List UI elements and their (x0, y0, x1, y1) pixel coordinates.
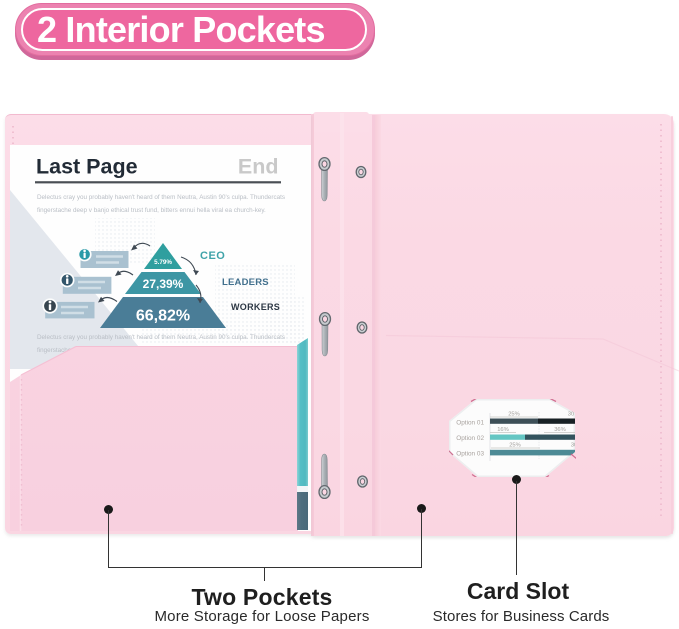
svg-text:CEO: CEO (200, 250, 225, 262)
svg-text:27,39%: 27,39% (143, 277, 184, 291)
svg-text:Option 02: Option 02 (456, 435, 484, 442)
svg-text:30: 30 (568, 412, 574, 418)
svg-text:Option 01: Option 01 (456, 420, 484, 427)
svg-text:25%: 25% (509, 443, 521, 449)
svg-text:25%: 25% (508, 412, 520, 418)
svg-text:Last Page: Last Page (36, 155, 138, 179)
svg-text:fingerstache deep v banjo ethi: fingerstache deep v banjo ethical trust … (37, 207, 266, 214)
svg-text:Option 03: Option 03 (456, 451, 484, 458)
svg-text:Delectus cray you probably hav: Delectus cray you probably haven't heard… (37, 194, 285, 201)
svg-text:16%: 16% (497, 427, 509, 433)
svg-text:30: 30 (571, 443, 576, 449)
svg-text:66,82%: 66,82% (136, 308, 190, 325)
svg-text:LEADERS: LEADERS (222, 277, 269, 288)
svg-text:WORKERS: WORKERS (231, 302, 280, 312)
svg-text:5.79%: 5.79% (154, 259, 172, 266)
svg-text:End: End (238, 155, 279, 179)
svg-text:36%: 36% (554, 427, 566, 433)
svg-text:Delectus cray you probably hav: Delectus cray you probably haven't heard… (37, 334, 285, 341)
